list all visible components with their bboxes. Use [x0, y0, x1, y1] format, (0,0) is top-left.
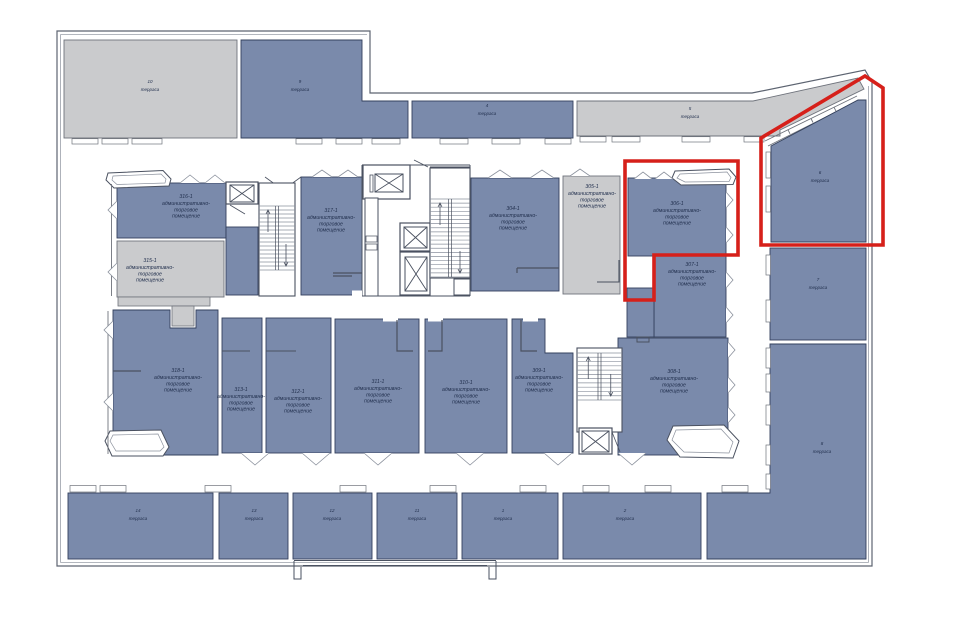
- svg-text:помещение: помещение: [164, 388, 192, 394]
- svg-text:310-1: 310-1: [459, 380, 472, 386]
- svg-text:помещение: помещение: [663, 221, 691, 227]
- svg-text:помещение: помещение: [227, 407, 255, 413]
- svg-text:терраса: терраса: [813, 449, 832, 454]
- svg-text:14: 14: [135, 508, 141, 513]
- svg-text:терраса: терраса: [478, 111, 497, 116]
- svg-text:309-1: 309-1: [532, 368, 545, 374]
- svg-text:помещение: помещение: [317, 228, 345, 234]
- svg-text:помещение: помещение: [452, 400, 480, 406]
- svg-text:административно-: административно-: [354, 386, 402, 392]
- svg-text:административно-: административно-: [126, 265, 174, 271]
- svg-text:административно-: административно-: [154, 375, 202, 381]
- svg-text:административно-: административно-: [489, 213, 537, 219]
- svg-text:306-1: 306-1: [670, 201, 683, 207]
- svg-text:317-1: 317-1: [324, 208, 337, 214]
- svg-text:помещение: помещение: [364, 399, 392, 405]
- svg-text:помещение: помещение: [525, 388, 553, 394]
- svg-text:терраса: терраса: [323, 516, 342, 521]
- svg-text:терраса: терраса: [245, 516, 264, 521]
- svg-text:2: 2: [623, 508, 627, 513]
- svg-text:административно-: административно-: [653, 208, 701, 214]
- svg-text:308-1: 308-1: [667, 369, 680, 375]
- svg-text:12: 12: [329, 508, 335, 513]
- svg-text:помещение: помещение: [172, 214, 200, 220]
- svg-text:313-1: 313-1: [234, 387, 247, 393]
- svg-text:административно-: административно-: [162, 201, 210, 207]
- svg-text:административно-: административно-: [668, 269, 716, 275]
- svg-text:316-1: 316-1: [179, 194, 192, 200]
- svg-text:помещение: помещение: [678, 282, 706, 288]
- svg-text:10: 10: [147, 79, 153, 84]
- svg-text:304-1: 304-1: [506, 206, 519, 212]
- svg-text:312-1: 312-1: [291, 389, 304, 395]
- svg-text:административно-: административно-: [442, 387, 490, 393]
- svg-text:терраса: терраса: [291, 87, 310, 92]
- svg-text:административно-: административно-: [568, 191, 616, 197]
- svg-text:307-1: 307-1: [685, 262, 698, 268]
- svg-text:терраса: терраса: [129, 516, 148, 521]
- svg-text:318-1: 318-1: [171, 368, 184, 374]
- svg-text:помещение: помещение: [284, 409, 312, 415]
- svg-text:помещение: помещение: [136, 278, 164, 284]
- svg-text:терраса: терраса: [141, 87, 160, 92]
- svg-text:терраса: терраса: [408, 516, 427, 521]
- svg-text:административно-: административно-: [515, 375, 563, 381]
- svg-text:315-1: 315-1: [143, 258, 156, 264]
- svg-text:13: 13: [251, 508, 257, 513]
- svg-text:терраса: терраса: [809, 285, 828, 290]
- svg-text:11: 11: [415, 508, 420, 513]
- svg-text:помещение: помещение: [499, 226, 527, 232]
- svg-text:305-1: 305-1: [585, 184, 598, 190]
- svg-text:311-1: 311-1: [372, 379, 385, 385]
- svg-text:административно-: административно-: [274, 396, 322, 402]
- svg-text:административно-: административно-: [307, 215, 355, 221]
- svg-text:терраса: терраса: [811, 178, 830, 183]
- svg-text:терраса: терраса: [494, 516, 513, 521]
- svg-text:помещение: помещение: [660, 389, 688, 395]
- svg-text:терраса: терраса: [681, 114, 700, 119]
- svg-text:терраса: терраса: [616, 516, 635, 521]
- svg-text:помещение: помещение: [578, 204, 606, 210]
- svg-text:административно-: административно-: [217, 394, 265, 400]
- svg-text:административно-: административно-: [650, 376, 698, 382]
